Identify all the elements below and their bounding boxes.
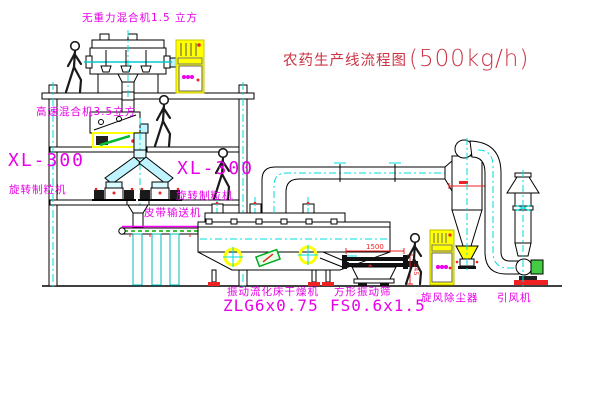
- label-granulator-mid-name: 旋转制粒机: [176, 191, 234, 202]
- label-cyclone: 旋风除尘器: [421, 293, 479, 304]
- sieve-width-dimension: 1500: [366, 243, 384, 251]
- label-fan: 引风机: [497, 293, 532, 304]
- person-ground: [406, 234, 421, 284]
- diagram-title-text: 农药生产线流程图: [283, 49, 407, 70]
- diagram-title: 农药生产线流程图 (500kg/h): [283, 46, 529, 72]
- exhaust-duct: [262, 163, 452, 213]
- label-granulator-left-name: 旋转制粒机: [9, 185, 67, 196]
- control-cabinet-top: [176, 40, 204, 93]
- y-splitter-chute: [105, 150, 173, 184]
- flow-diagram-canvas: 1500 345 农药生产线流程图 (500kg/h) 无重力混合机1.5 立方…: [0, 0, 600, 403]
- label-gravity-free-mixer: 无重力混合机1.5 立方: [82, 13, 198, 24]
- control-cabinet-right: [430, 230, 454, 285]
- label-granulator-left-model: XL-300: [8, 152, 85, 170]
- diagram-title-capacity: (500kg/h): [409, 46, 529, 72]
- person-second-floor: [155, 96, 170, 146]
- label-high-speed-mixer: 高速混合机3.5立方: [36, 107, 136, 118]
- label-sieve-model: FS0.6x1.5: [330, 298, 426, 314]
- belt-conveyor-drawing: [119, 227, 207, 238]
- label-dryer-model: ZLG6x0.75: [223, 298, 319, 314]
- label-granulator-mid-model: XL-300: [177, 160, 254, 178]
- person-top-floor: [66, 42, 81, 92]
- support-pillars: [133, 234, 179, 285]
- label-belt-conveyor: 皮带输送机: [144, 208, 202, 219]
